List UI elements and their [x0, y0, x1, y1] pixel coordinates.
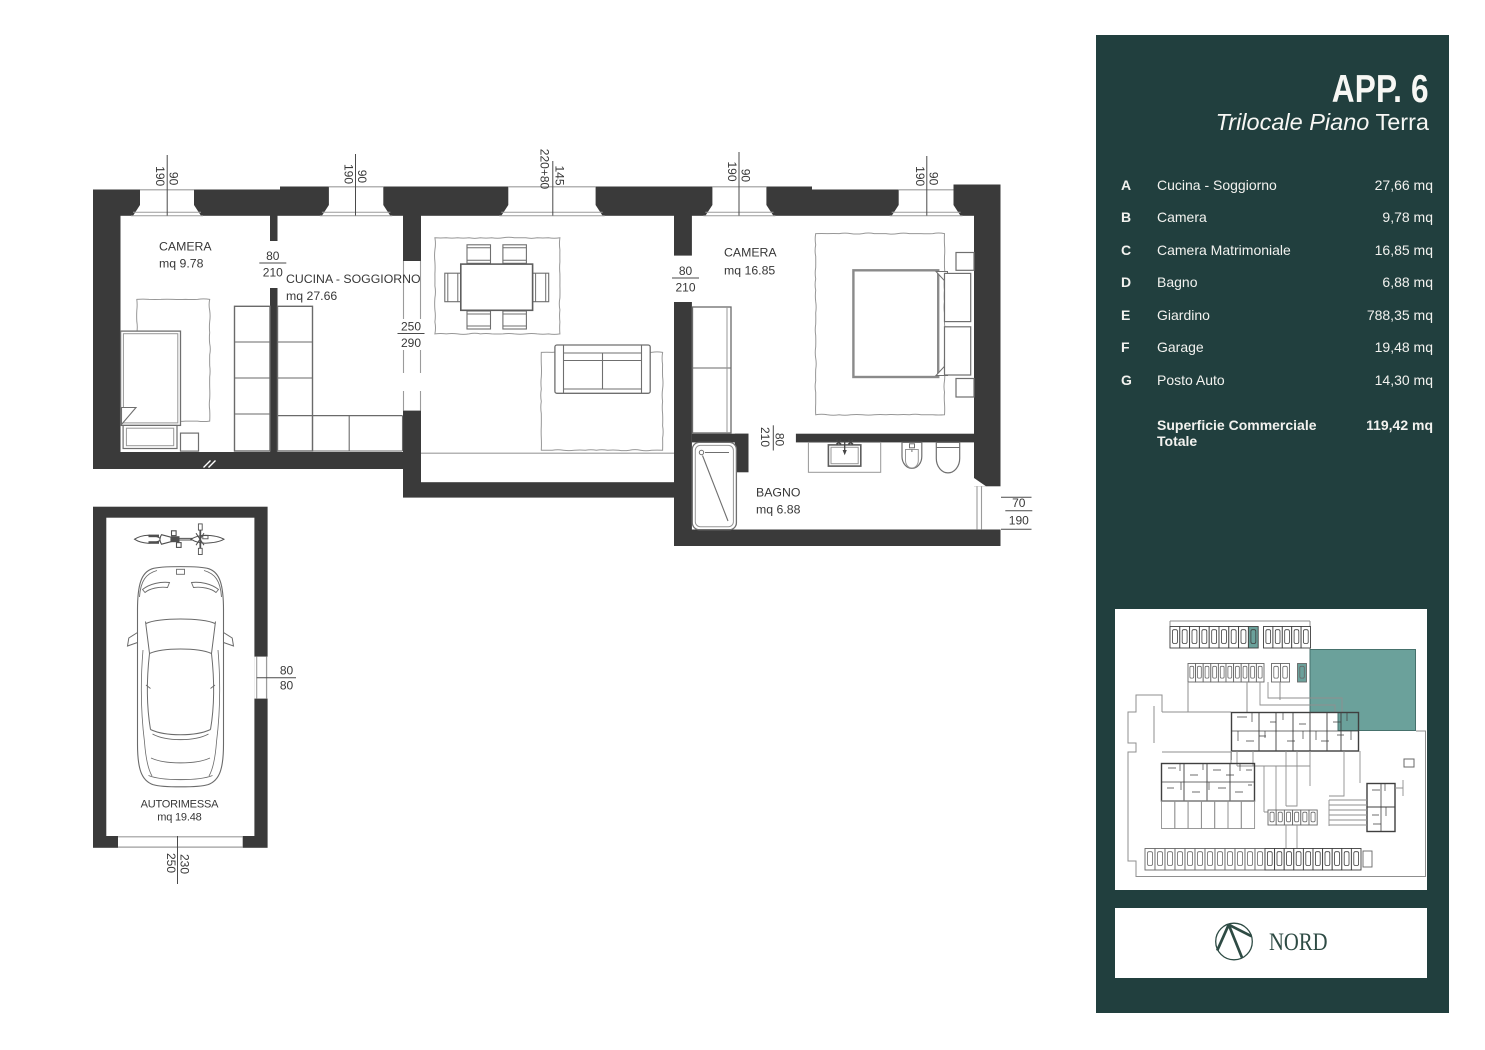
svg-text:NORD: NORD: [1269, 929, 1328, 956]
svg-text:210: 210: [675, 281, 695, 295]
svg-text:250: 250: [401, 320, 421, 334]
svg-text:210: 210: [758, 427, 772, 447]
svg-text:230: 230: [177, 854, 191, 874]
svg-text:190: 190: [342, 164, 356, 184]
svg-text:90: 90: [926, 172, 940, 186]
svg-text:CAMERA: CAMERA: [724, 246, 777, 260]
svg-text:80: 80: [679, 264, 693, 278]
svg-text:80: 80: [266, 249, 280, 263]
svg-text:mq 16.85: mq 16.85: [724, 264, 775, 278]
svg-text:90: 90: [739, 169, 753, 183]
svg-text:80: 80: [773, 433, 787, 447]
svg-text:220+80: 220+80: [538, 149, 552, 190]
svg-text:250: 250: [164, 853, 178, 873]
svg-text:CUCINA - SOGGIORNO: CUCINA - SOGGIORNO: [286, 272, 421, 286]
svg-text:mq 6.88: mq 6.88: [756, 503, 801, 517]
svg-text:190: 190: [913, 166, 927, 186]
svg-text:mq 9.78: mq 9.78: [159, 257, 204, 271]
svg-text:CAMERA: CAMERA: [159, 240, 212, 254]
svg-text:290: 290: [401, 336, 421, 350]
svg-text:BAGNO: BAGNO: [756, 486, 800, 500]
svg-text:AUTORIMESSA: AUTORIMESSA: [141, 799, 220, 811]
svg-text:145: 145: [552, 165, 566, 185]
svg-text:190: 190: [725, 161, 739, 181]
svg-text:mq 19.48: mq 19.48: [157, 812, 201, 824]
svg-text:190: 190: [153, 166, 167, 186]
svg-text:80: 80: [280, 679, 294, 693]
svg-text:70: 70: [1012, 496, 1026, 510]
svg-text:80: 80: [280, 664, 294, 678]
svg-text:90: 90: [355, 170, 369, 184]
svg-text:90: 90: [167, 172, 181, 186]
svg-text:210: 210: [263, 266, 283, 280]
svg-text:mq 27.66: mq 27.66: [286, 289, 337, 303]
svg-text:190: 190: [1009, 514, 1029, 528]
